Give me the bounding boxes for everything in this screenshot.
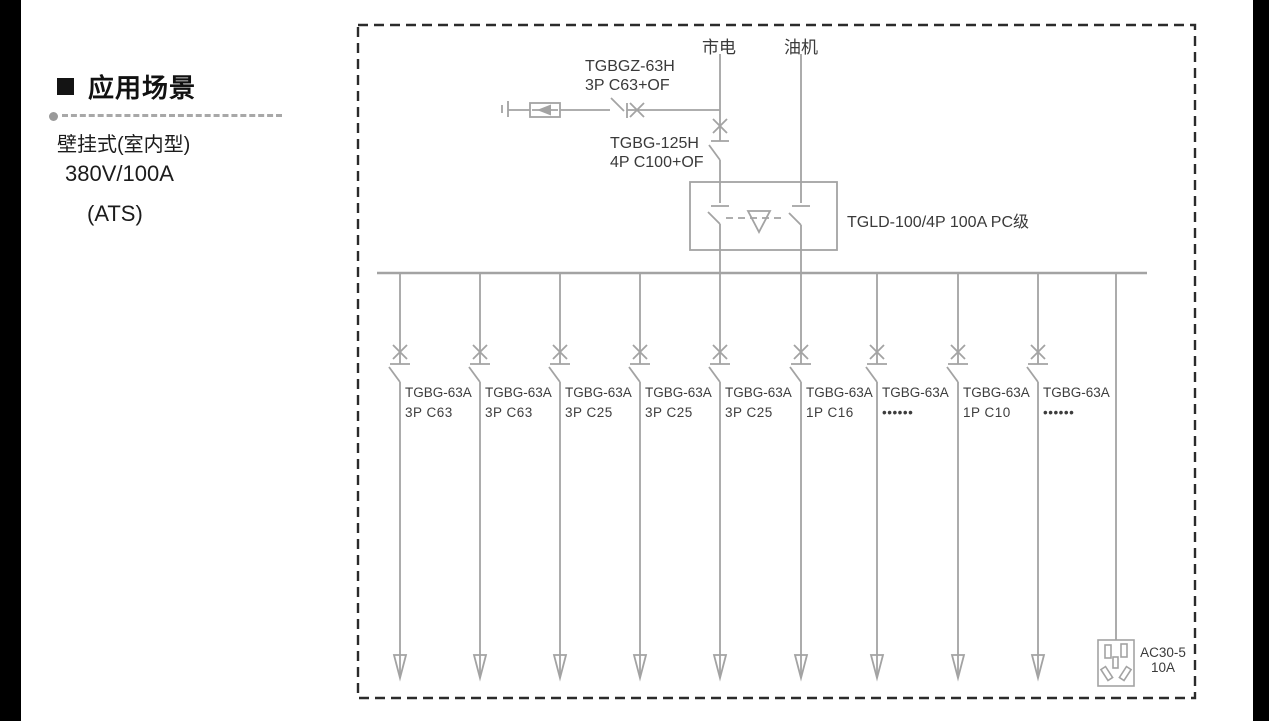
socket-icon bbox=[1098, 640, 1134, 686]
socket-branch bbox=[1098, 273, 1134, 686]
branch-label-7: TGBG-63A •••••• bbox=[882, 385, 949, 420]
branch-label-6: TGBG-63A 1P C16 bbox=[806, 385, 873, 420]
ats-box bbox=[690, 182, 837, 273]
diagram-dashed-border bbox=[358, 25, 1195, 698]
single-line-diagram bbox=[0, 0, 1269, 721]
branch-label-4: TGBG-63A 3P C25 bbox=[645, 385, 712, 420]
branch-label-8: TGBG-63A 1P C10 bbox=[963, 385, 1030, 420]
branch-circuit-6 bbox=[790, 273, 811, 678]
ats-triangle-icon bbox=[748, 211, 770, 232]
mains-feed-line bbox=[709, 54, 729, 182]
branch-label-5: TGBG-63A 3P C25 bbox=[725, 385, 792, 420]
branch-circuit-4 bbox=[629, 273, 650, 678]
branch-label-1: TGBG-63A 3P C63 bbox=[405, 385, 472, 420]
ats-left-switch bbox=[708, 182, 729, 273]
spd-branch bbox=[502, 98, 720, 118]
ground-icon bbox=[502, 101, 508, 117]
disconnect-blade-icon bbox=[611, 98, 624, 111]
mains-source-label: 市电 bbox=[702, 33, 736, 58]
main-breaker-label: TGBG-125H 4P C100+OF bbox=[610, 134, 704, 172]
slide-page: 应用场景 壁挂式(室内型) 380V/100A (ATS) bbox=[0, 0, 1269, 721]
branch-circuit-2 bbox=[469, 273, 490, 678]
breaker-blade-icon bbox=[709, 145, 720, 160]
spd-breaker-label: TGBGZ-63H 3P C63+OF bbox=[585, 57, 675, 95]
branch-circuit-8 bbox=[947, 273, 968, 678]
branch-circuit-5 bbox=[709, 273, 730, 678]
branch-circuit-3 bbox=[549, 273, 570, 678]
ats-label: TGLD-100/4P 100A PC级 bbox=[847, 208, 1029, 232]
ats-right-switch bbox=[789, 182, 810, 273]
branch-label-3: TGBG-63A 3P C25 bbox=[565, 385, 632, 420]
socket-label: AC30-5 10A bbox=[1138, 645, 1188, 675]
branch-label-9: TGBG-63A •••••• bbox=[1043, 385, 1110, 420]
branch-circuit-9 bbox=[1027, 273, 1048, 678]
spd-arrow-icon bbox=[537, 105, 551, 116]
branch-label-2: TGBG-63A 3P C63 bbox=[485, 385, 552, 420]
generator-source-label: 油机 bbox=[784, 33, 818, 58]
branch-circuit-1 bbox=[389, 273, 410, 678]
branch-circuit-7 bbox=[866, 273, 887, 678]
